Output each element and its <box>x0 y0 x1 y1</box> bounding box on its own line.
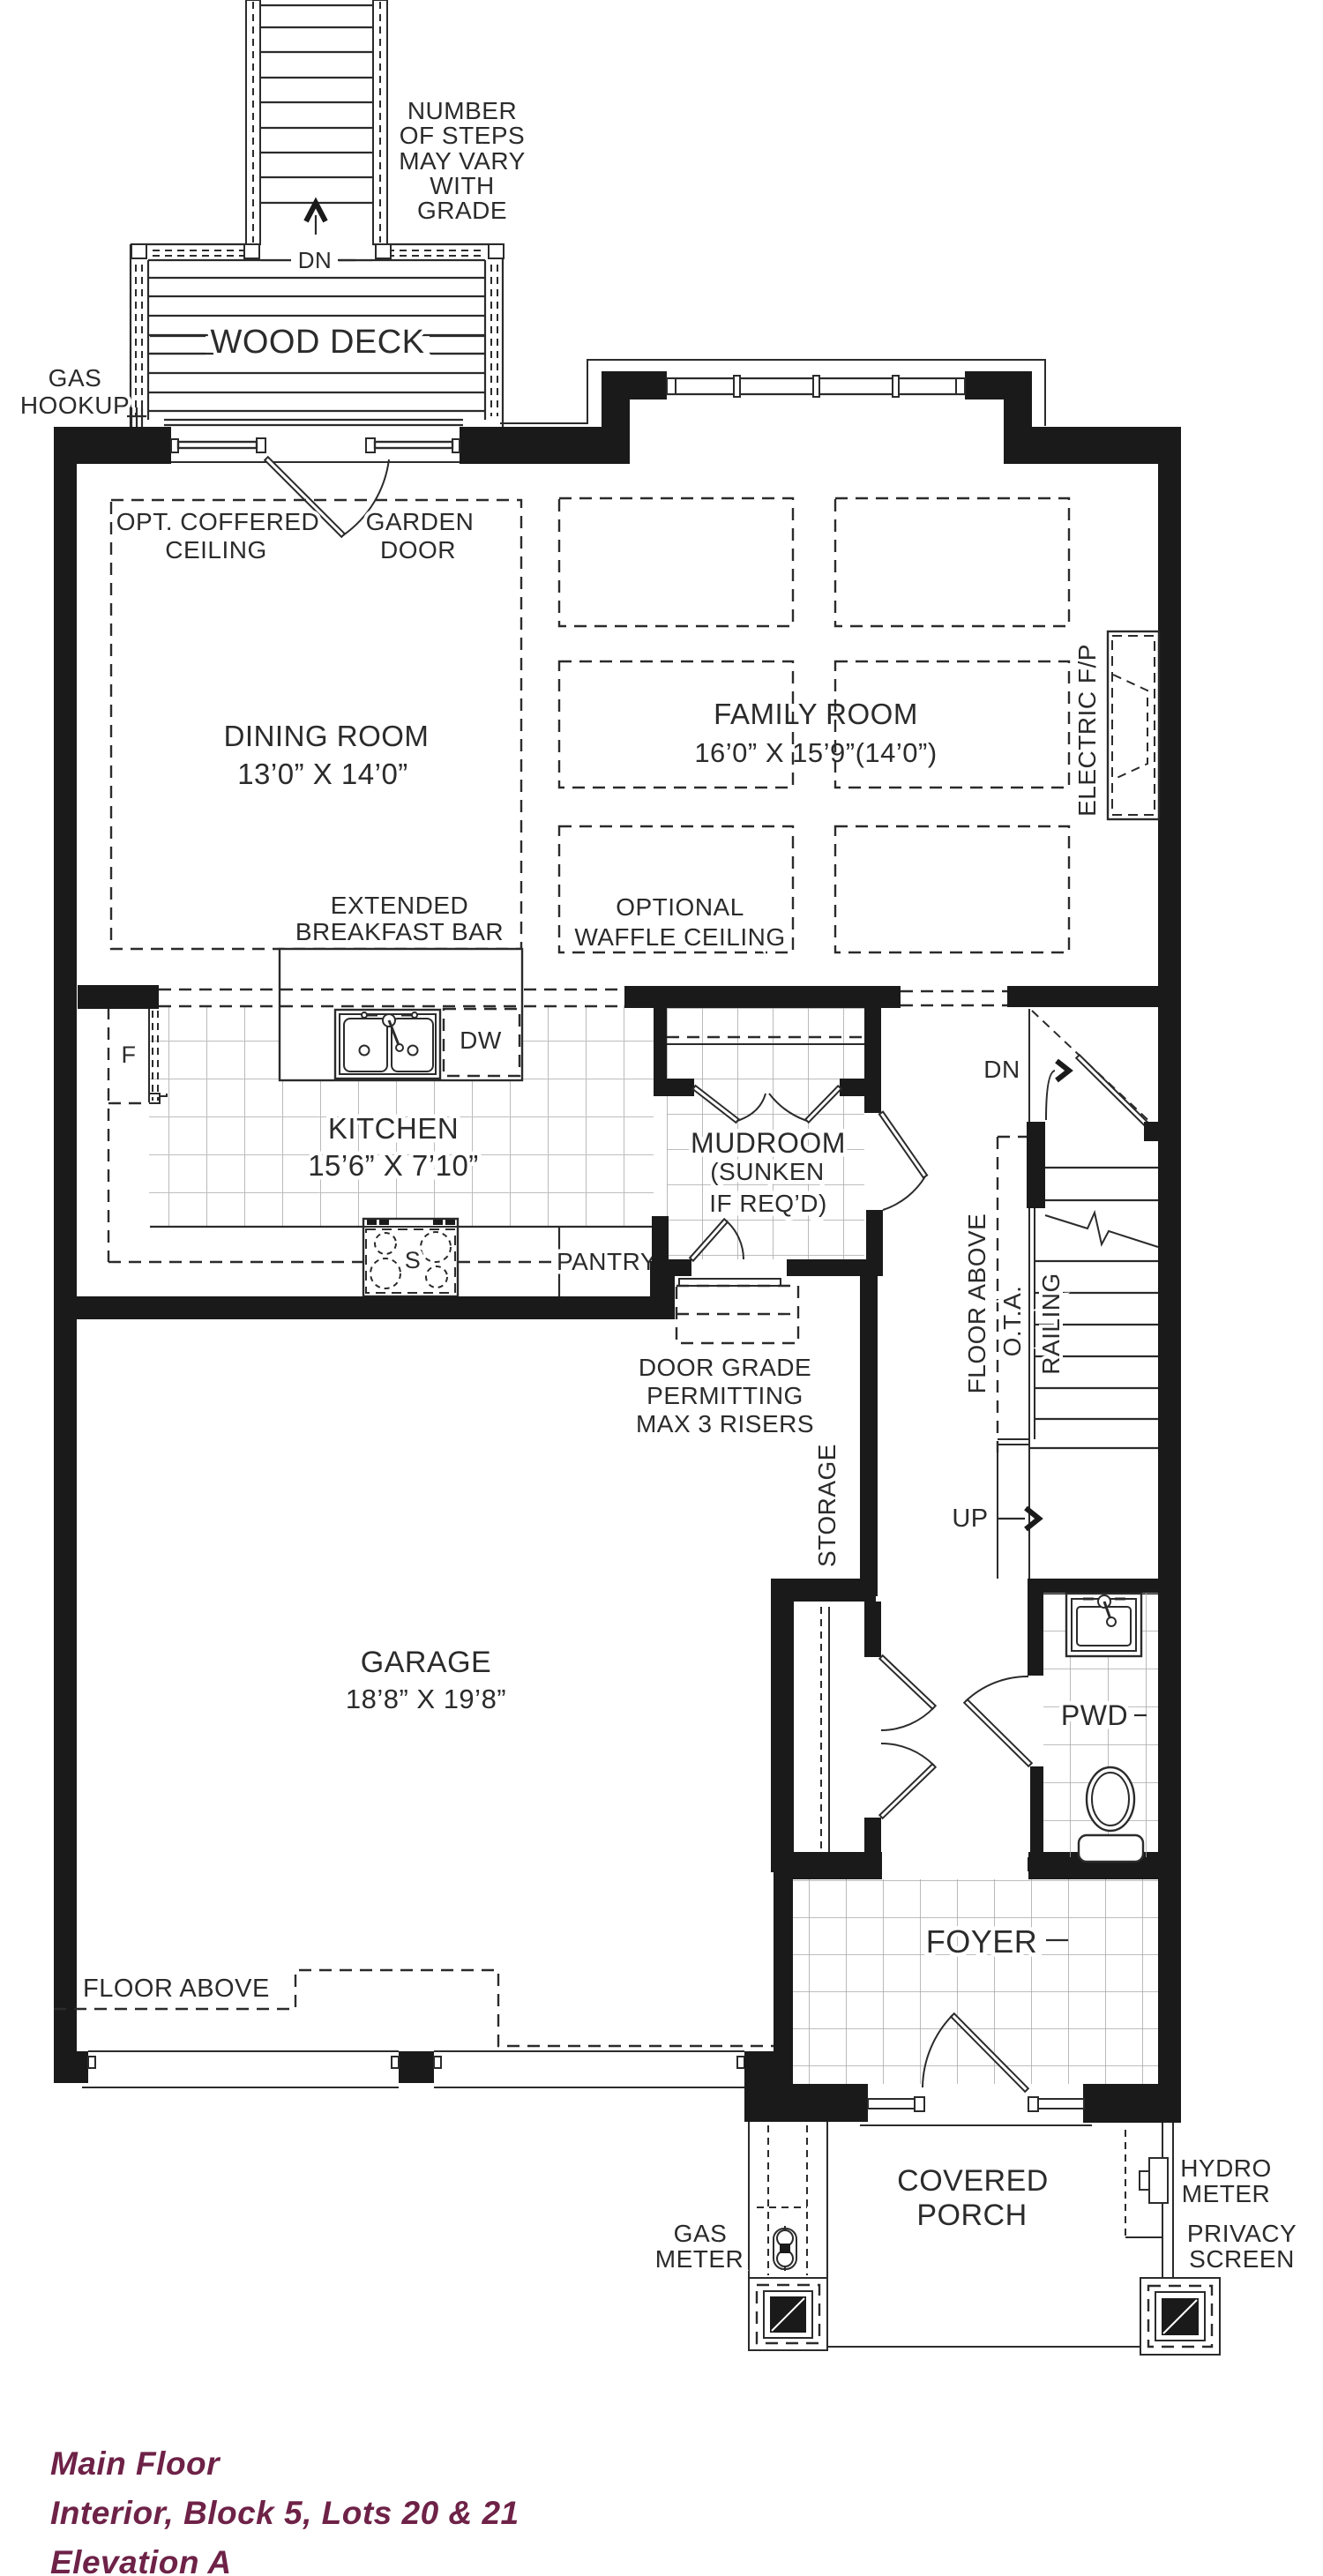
svg-text:FLOOR ABOVE: FLOOR ABOVE <box>963 1213 990 1394</box>
svg-text:15’6” X 7’10”: 15’6” X 7’10” <box>308 1149 479 1182</box>
svg-text:(SUNKEN: (SUNKEN <box>710 1158 825 1185</box>
svg-text:PORCH: PORCH <box>916 2199 1027 2232</box>
svg-text:UP: UP <box>952 1505 988 1533</box>
svg-text:WOOD DECK: WOOD DECK <box>210 324 424 361</box>
svg-text:NUMBER: NUMBER <box>407 97 517 124</box>
svg-text:MAY VARY: MAY VARY <box>399 147 526 175</box>
svg-text:MUDROOM: MUDROOM <box>691 1127 846 1159</box>
svg-text:FAMILY ROOM: FAMILY ROOM <box>714 698 918 730</box>
svg-text:Interior, Block 5, Lots 20 & 2: Interior, Block 5, Lots 20 & 21 <box>50 2495 519 2531</box>
svg-text:Elevation A: Elevation A <box>50 2544 232 2576</box>
svg-text:CEILING: CEILING <box>165 536 267 564</box>
svg-text:PANTRY: PANTRY <box>557 1248 657 1275</box>
svg-text:GAS: GAS <box>674 2220 728 2247</box>
svg-text:OPT. COFFERED: OPT. COFFERED <box>116 508 320 535</box>
svg-text:O.T.A.: O.T.A. <box>998 1286 1026 1357</box>
svg-text:HYDRO: HYDRO <box>1180 2154 1272 2182</box>
svg-text:COVERED: COVERED <box>897 2164 1049 2198</box>
svg-text:STORAGE: STORAGE <box>813 1444 841 1567</box>
svg-text:WITH: WITH <box>430 172 495 199</box>
svg-text:DINING ROOM: DINING ROOM <box>224 720 430 752</box>
svg-text:F: F <box>122 1042 137 1068</box>
svg-text:DOOR: DOOR <box>380 536 456 564</box>
svg-text:S: S <box>405 1247 422 1273</box>
svg-text:DN: DN <box>983 1056 1020 1083</box>
svg-text:GAS: GAS <box>49 364 102 392</box>
svg-text:18’8” X 19’8”: 18’8” X 19’8” <box>346 1684 506 1714</box>
svg-text:OPTIONAL: OPTIONAL <box>616 893 744 921</box>
svg-text:PERMITTING: PERMITTING <box>647 1382 804 1409</box>
svg-text:MAX 3 RISERS: MAX 3 RISERS <box>636 1410 814 1437</box>
svg-text:DN: DN <box>298 247 333 273</box>
svg-text:DOOR GRADE: DOOR GRADE <box>639 1354 811 1381</box>
svg-text:FOYER: FOYER <box>926 1923 1038 1960</box>
svg-text:HOOKUP: HOOKUP <box>20 392 130 419</box>
svg-text:WAFFLE CEILING: WAFFLE CEILING <box>574 923 785 951</box>
svg-text:SCREEN: SCREEN <box>1189 2245 1295 2273</box>
svg-text:GARAGE: GARAGE <box>361 1646 491 1679</box>
svg-text:GRADE: GRADE <box>417 197 507 224</box>
svg-text:GARDEN: GARDEN <box>366 508 475 535</box>
svg-text:16’0” X 15’9”(14’0”): 16’0” X 15’9”(14’0”) <box>694 737 937 768</box>
svg-text:OF STEPS: OF STEPS <box>400 122 525 149</box>
svg-text:PRIVACY: PRIVACY <box>1187 2220 1297 2247</box>
svg-text:RAILING: RAILING <box>1037 1273 1065 1375</box>
svg-text:PWD: PWD <box>1061 1699 1128 1731</box>
svg-text:13’0” X 14’0”: 13’0” X 14’0” <box>237 758 408 790</box>
svg-text:BREAKFAST BAR: BREAKFAST BAR <box>295 918 504 945</box>
svg-text:DW: DW <box>460 1027 502 1054</box>
svg-text:METER: METER <box>655 2245 744 2273</box>
svg-text:IF REQ’D): IF REQ’D) <box>709 1190 827 1217</box>
svg-text:KITCHEN: KITCHEN <box>328 1112 459 1145</box>
svg-text:Main Floor: Main Floor <box>50 2445 221 2482</box>
svg-text:METER: METER <box>1182 2180 1271 2207</box>
svg-text:ELECTRIC F/P: ELECTRIC F/P <box>1073 644 1101 817</box>
svg-text:FLOOR ABOVE: FLOOR ABOVE <box>83 1975 270 2003</box>
svg-text:EXTENDED: EXTENDED <box>331 892 468 919</box>
